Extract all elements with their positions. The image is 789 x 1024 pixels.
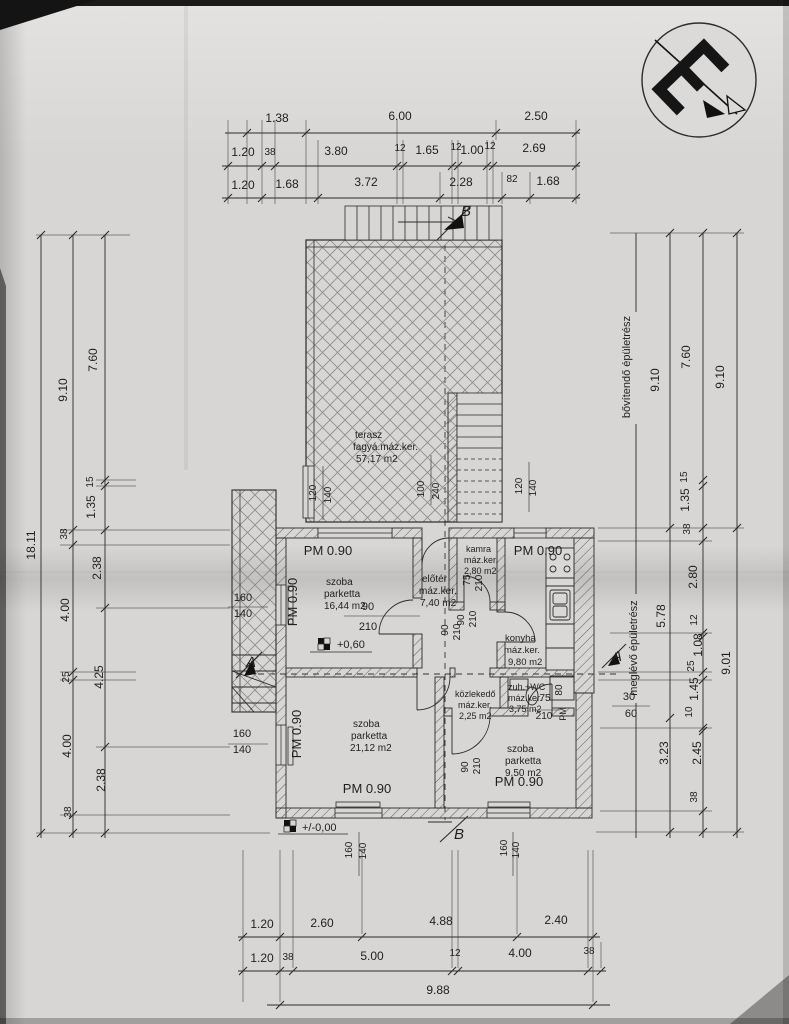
dim-label: 1.00 bbox=[460, 143, 484, 157]
window-dim: 120 bbox=[514, 477, 525, 494]
dim-label: 2.40 bbox=[544, 913, 568, 927]
dim-label: 12 bbox=[449, 948, 461, 959]
radiator bbox=[336, 802, 380, 807]
dim-label: 12 bbox=[394, 143, 406, 154]
dim-label: 12 bbox=[689, 614, 700, 626]
door-dim: 210 bbox=[536, 711, 553, 722]
dim-label: 1.20 bbox=[250, 951, 274, 965]
door-dim: 90 bbox=[362, 601, 374, 613]
dim-label: 4.00 bbox=[508, 946, 532, 960]
dim-label: 9.10 bbox=[713, 365, 727, 389]
dim-label: 6.00 bbox=[388, 109, 412, 123]
dim-label: 38 bbox=[583, 946, 595, 957]
door-dim: 75 bbox=[539, 693, 551, 704]
room-eloter-area: 7,40 m2 bbox=[420, 598, 457, 609]
dim-label: 2.28 bbox=[449, 175, 473, 189]
room-kozlekedo-name: közlekedő bbox=[455, 689, 496, 699]
door-dim: 90 bbox=[456, 614, 467, 626]
room-szoba3-name: szoba bbox=[507, 744, 534, 755]
dim-label: 1.20 bbox=[231, 178, 255, 192]
room-kozlekedo-area: 2,25 m2 bbox=[459, 711, 492, 721]
dim-label: 4.00 bbox=[58, 598, 72, 622]
dim-label: 1.08 bbox=[691, 633, 705, 657]
fixture-dim: 80 bbox=[554, 684, 565, 696]
section-marker-label: B bbox=[461, 203, 471, 220]
parapet-label: PM 0.90 bbox=[285, 578, 300, 626]
window-dim: 140 bbox=[511, 841, 522, 858]
room-eloter-finish: máz.ker. bbox=[419, 586, 457, 597]
floor-plan-drawing: 1.386.002.501.20383.80121.65121.00122.69… bbox=[0, 0, 789, 1024]
room-szoba1-area: 16,44 m2 bbox=[324, 601, 366, 612]
level-marker-label: +0,60 bbox=[337, 639, 365, 651]
dim-label: 38 bbox=[264, 147, 276, 158]
door-dim: 210 bbox=[468, 610, 479, 627]
radiator bbox=[488, 802, 530, 807]
section-marker-label: A bbox=[245, 654, 256, 671]
dim-label: 5.78 bbox=[654, 604, 668, 628]
parapet-label: PM 0.90 bbox=[289, 710, 304, 758]
window-dim: 160 bbox=[233, 728, 251, 740]
dim-label: 4.88 bbox=[429, 914, 453, 928]
door-dim: 210 bbox=[474, 574, 485, 591]
dim-label: 2.45 bbox=[690, 741, 704, 765]
room-kamra-name: kamra bbox=[466, 544, 491, 554]
section-marker-label: B bbox=[454, 826, 464, 843]
window-dim: 160 bbox=[234, 592, 252, 604]
door-dim: 75 bbox=[462, 574, 473, 586]
dim-label: 15 bbox=[679, 471, 690, 483]
room-szoba2-name: szoba bbox=[353, 719, 380, 730]
architect-monogram-logo bbox=[642, 23, 756, 137]
dim-label: 12 bbox=[484, 141, 496, 152]
dim-label: 38 bbox=[63, 806, 74, 818]
room-wc-name: zuh.+WC bbox=[508, 682, 546, 692]
room-szoba2-finish: parketta bbox=[351, 731, 388, 742]
dim-label: 1.38 bbox=[265, 111, 289, 125]
dim-total-right: 9.01 bbox=[719, 651, 733, 675]
dim-label: 25 bbox=[61, 671, 72, 683]
wall-dim: 30 bbox=[623, 691, 635, 703]
dim-label: 1.68 bbox=[275, 177, 299, 191]
dim-label: 2.69 bbox=[522, 141, 546, 155]
dim-label: 3.80 bbox=[324, 144, 348, 158]
parapet-label: PM 0.90 bbox=[495, 774, 543, 789]
dim-label: 2.80 bbox=[686, 565, 700, 589]
dim-total-bottom: 9.88 bbox=[426, 983, 450, 997]
dim-total-left: 18.11 bbox=[24, 530, 38, 559]
label-building-extend: bővítendő épületrész bbox=[621, 316, 633, 418]
dim-label: 25 bbox=[686, 660, 697, 672]
dim-label: 7.60 bbox=[679, 345, 693, 369]
parapet-label: PM 0.90 bbox=[343, 781, 391, 796]
dim-label: 7.60 bbox=[86, 348, 100, 372]
dim-label: 2.50 bbox=[524, 109, 548, 123]
parapet-label: PM 0.90 bbox=[514, 543, 562, 558]
door-dim: 90 bbox=[460, 761, 471, 773]
window-dim: 240 bbox=[431, 482, 442, 499]
room-kozlekedo-finish: máz.ker. bbox=[458, 700, 492, 710]
dim-label: 1.20 bbox=[231, 145, 255, 159]
dim-label: 3.72 bbox=[354, 175, 378, 189]
scanned-floor-plan-sheet: 1.386.002.501.20383.80121.65121.00122.69… bbox=[0, 0, 789, 1024]
room-eloter-name: előtér bbox=[422, 574, 448, 585]
dim-label: 15 bbox=[85, 476, 96, 488]
window-dim: 140 bbox=[233, 744, 251, 756]
window-dim: 140 bbox=[528, 479, 539, 496]
dim-label: 9.10 bbox=[56, 378, 70, 402]
section-marker-label: A bbox=[611, 648, 622, 665]
room-konyha-name: konyha bbox=[505, 633, 536, 644]
dim-label: 1.20 bbox=[250, 917, 274, 931]
exterior-stairs-top bbox=[345, 206, 502, 240]
dim-label: 5.00 bbox=[360, 949, 384, 963]
room-konyha-finish: máz.ker. bbox=[504, 645, 540, 656]
parapet-label: PM 0.90 bbox=[304, 543, 352, 558]
dim-label: 82 bbox=[506, 174, 518, 185]
dim-label: 1.35 bbox=[678, 488, 692, 512]
door-dim: 210 bbox=[359, 621, 377, 633]
room-szoba2-area: 21,12 m2 bbox=[350, 743, 392, 754]
room-kamra-finish: máz.ker. bbox=[464, 555, 498, 565]
dim-label: 9.10 bbox=[648, 368, 662, 392]
room-terasz-name: terasz bbox=[355, 430, 382, 441]
label-building-existing: meglévő épületrész bbox=[628, 600, 640, 695]
dim-label: 2.60 bbox=[310, 916, 334, 930]
room-szoba1-finish: parketta bbox=[324, 589, 361, 600]
dim-label: 10 bbox=[684, 706, 695, 718]
window-dim: 140 bbox=[323, 486, 334, 503]
window-dim: 100 bbox=[416, 480, 427, 497]
door-dim: 90 bbox=[440, 624, 451, 636]
dim-label: 4.25 bbox=[92, 665, 106, 689]
window-dim: 160 bbox=[499, 839, 510, 856]
dim-label: 2.38 bbox=[94, 768, 108, 792]
window-dim: 140 bbox=[234, 608, 252, 620]
level-marker-label: +/-0,00 bbox=[302, 822, 337, 834]
room-terasz-area: 57,17 m2 bbox=[356, 454, 398, 465]
window-dim: 140 bbox=[358, 842, 369, 859]
room-terasz-finish: fagyá.máz.ker. bbox=[353, 442, 418, 453]
dim-label: 38 bbox=[689, 791, 700, 803]
room-wc-finish: máz.ker. bbox=[508, 693, 542, 703]
dim-label: 38 bbox=[682, 523, 693, 535]
wall-dim: 60 bbox=[625, 708, 637, 720]
door-dim: 210 bbox=[472, 757, 483, 774]
room-konyha-area: 9,80 m2 bbox=[508, 657, 542, 668]
parapet-label: PM bbox=[558, 707, 568, 721]
dim-label: 38 bbox=[59, 528, 70, 540]
dim-label: 38 bbox=[282, 952, 294, 963]
kitchen-counter bbox=[546, 548, 574, 670]
dim-label: 1.65 bbox=[415, 143, 439, 157]
terrace-side-stairs bbox=[448, 393, 502, 522]
room-szoba3-finish: parketta bbox=[505, 756, 542, 767]
room-szoba1-name: szoba bbox=[326, 577, 353, 588]
dim-label: 1.45 bbox=[687, 677, 701, 701]
window-dim: 160 bbox=[344, 841, 355, 858]
dim-label: 3.23 bbox=[657, 741, 671, 765]
dim-label: 2.38 bbox=[90, 556, 104, 580]
dim-label: 1.68 bbox=[536, 174, 560, 188]
window-dim: 120 bbox=[308, 484, 319, 501]
dim-label: 4.00 bbox=[60, 734, 74, 758]
dim-label: 1.35 bbox=[84, 495, 98, 519]
